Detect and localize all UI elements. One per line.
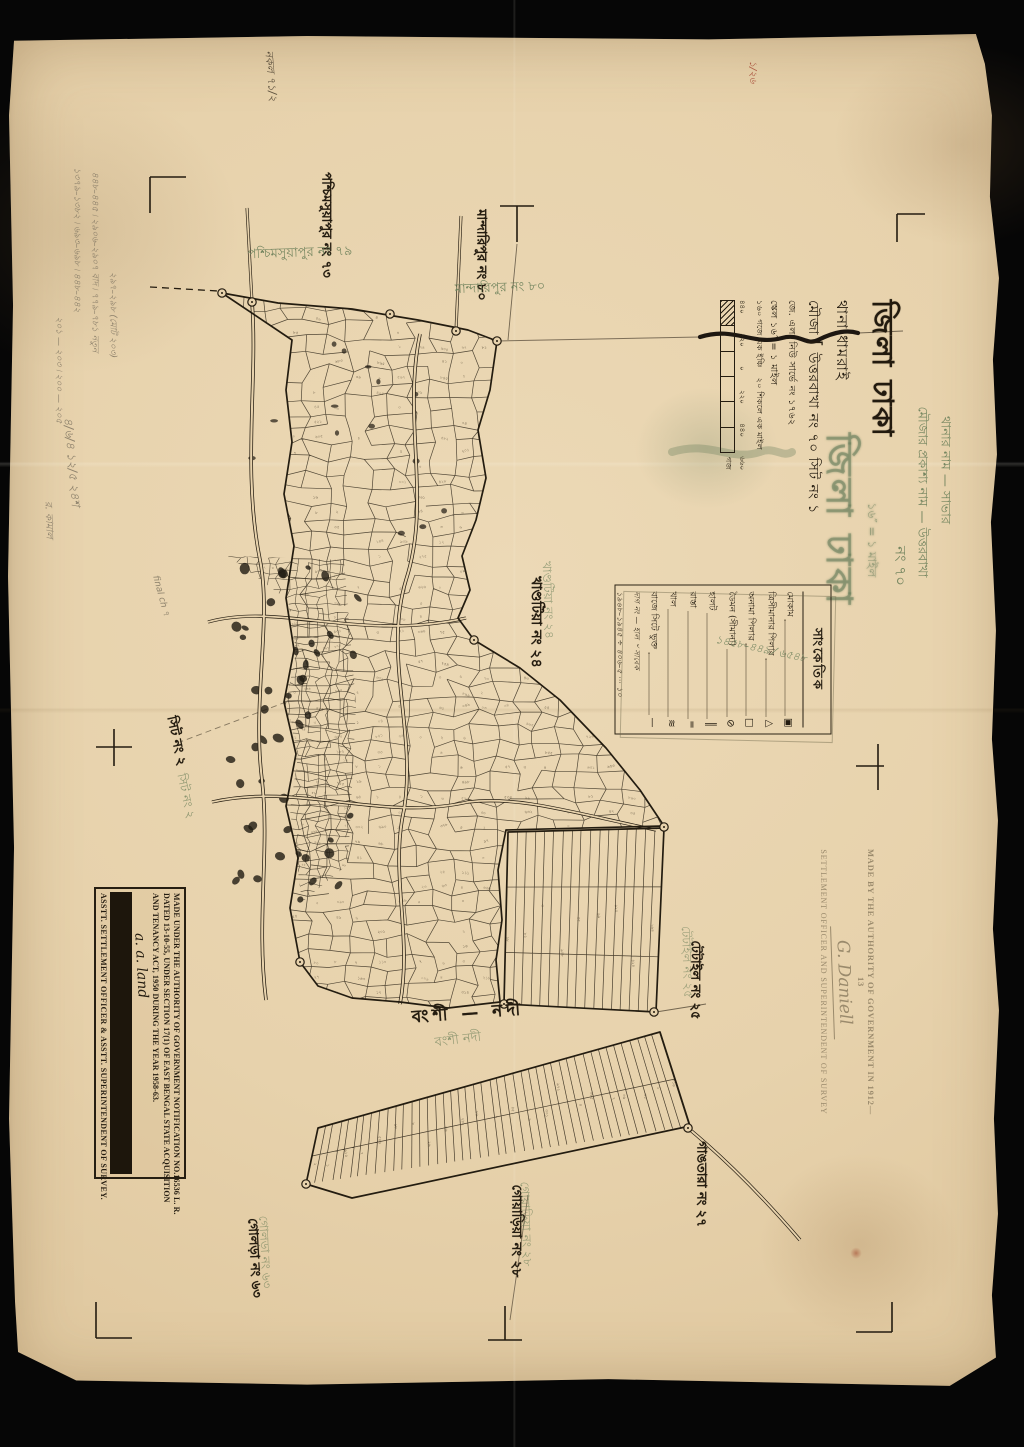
svg-text:৩: ৩ bbox=[438, 675, 442, 680]
svg-text:৪: ৪ bbox=[398, 794, 401, 799]
svg-text:৮০৬: ৮০৬ bbox=[273, 660, 282, 666]
svg-text:২: ২ bbox=[354, 960, 358, 965]
svg-text:৫৯: ৫৯ bbox=[282, 782, 287, 787]
svg-text:৯৯: ৯৯ bbox=[342, 863, 347, 868]
svg-text:০: ০ bbox=[607, 493, 611, 499]
svg-text:৪: ৪ bbox=[463, 299, 466, 304]
svg-text:২: ২ bbox=[564, 629, 567, 634]
svg-text:১৩: ১৩ bbox=[343, 758, 348, 762]
svg-text:১: ১ bbox=[376, 794, 380, 799]
registration-mark bbox=[500, 206, 534, 242]
svg-text:৩৩২: ৩৩২ bbox=[375, 675, 384, 682]
svg-text:৫০০: ৫০০ bbox=[291, 621, 298, 627]
svg-text:২: ২ bbox=[440, 735, 443, 740]
svg-text:৮৩৬: ৮৩৬ bbox=[230, 750, 239, 757]
svg-text:৪২৪: ৪২৪ bbox=[631, 959, 637, 968]
svg-text:৮৪৫: ৮৪৫ bbox=[440, 375, 449, 381]
svg-text:০৪: ০৪ bbox=[249, 868, 256, 874]
svg-text:৮: ৮ bbox=[315, 510, 319, 515]
authority-1912-stamp: MADE BY THE AUTHORITY OF GOVERNMENT IN 1… bbox=[798, 844, 876, 1120]
svg-text:৬১১: ৬১১ bbox=[648, 372, 657, 380]
svg-text:৫৪: ৫৪ bbox=[544, 705, 550, 711]
svg-text:৩: ৩ bbox=[650, 975, 653, 980]
svg-text:২৮৬: ২৮৬ bbox=[544, 476, 553, 484]
svg-text:২: ২ bbox=[524, 436, 528, 442]
svg-text:৩: ৩ bbox=[440, 524, 443, 529]
svg-text:৮: ৮ bbox=[565, 495, 569, 501]
svg-text:৫৯: ৫৯ bbox=[398, 1018, 405, 1024]
svg-text:৯৪৫: ৯৪৫ bbox=[250, 1020, 259, 1026]
scale-tick: ৪৪০ bbox=[736, 300, 748, 314]
svg-text:৮: ৮ bbox=[334, 615, 337, 620]
svg-text:৪৬: ৪৬ bbox=[273, 389, 279, 394]
svg-text:১৮৫: ১৮৫ bbox=[263, 695, 270, 700]
svg-text:৯৫: ৯৫ bbox=[651, 479, 657, 484]
svg-text:৯২৬: ৯২৬ bbox=[630, 463, 639, 469]
svg-text:৮৬০: ৮৬০ bbox=[628, 795, 637, 802]
svg-text:৩: ৩ bbox=[462, 958, 466, 963]
svg-text:১: ১ bbox=[273, 1020, 277, 1026]
svg-text:৪৫৬: ৪৫৬ bbox=[525, 447, 534, 454]
svg-text:৮৭১: ৮৭১ bbox=[334, 643, 342, 649]
svg-text:৭৫: ৭৫ bbox=[607, 555, 614, 561]
svg-text:৮১: ৮১ bbox=[481, 345, 487, 350]
margin-handwritten-note: ৪৪৮–৪৪৫ ৷ ২৯০৬–২৯০৭ বাদ ৷ ৭৭৯–৭৮১ নতুন bbox=[90, 172, 99, 352]
svg-text:৮৬৩: ৮৬৩ bbox=[670, 807, 679, 814]
svg-text:১: ১ bbox=[670, 869, 674, 874]
svg-text:৪৪: ৪৪ bbox=[313, 299, 319, 304]
svg-text:৭৮: ৭৮ bbox=[694, 855, 700, 861]
svg-text:৫: ৫ bbox=[399, 449, 403, 454]
svg-text:১০: ১০ bbox=[351, 598, 356, 602]
svg-text:০: ০ bbox=[523, 870, 526, 875]
svg-text:৪: ৪ bbox=[691, 435, 694, 440]
neighbor-mouza-label: খাণ্ডটিয়া নং ২৪ bbox=[541, 561, 556, 639]
svg-text:৩: ৩ bbox=[250, 735, 254, 741]
svg-text:৮৫৫: ৮৫৫ bbox=[545, 750, 554, 756]
svg-text:৪৫: ৪৫ bbox=[511, 1106, 516, 1112]
neighbor-mouza-label: পশ্চিমসুয়াপুর নং ৭৯ bbox=[248, 245, 353, 262]
svg-text:৬৯০: ৬৯০ bbox=[379, 824, 387, 829]
svg-text:৩২: ৩২ bbox=[546, 990, 552, 995]
svg-text:৮৯৫: ৮৯৫ bbox=[377, 360, 386, 366]
margin-handwritten-note: ১/২৬ bbox=[747, 61, 757, 84]
svg-text:৩৩: ৩৩ bbox=[377, 750, 383, 755]
svg-text:৮: ৮ bbox=[355, 764, 359, 770]
svg-text:২: ২ bbox=[273, 990, 277, 995]
svg-text:২০১: ২০১ bbox=[461, 447, 470, 454]
svg-text:৮০: ৮০ bbox=[313, 960, 320, 966]
svg-text:৭৩: ৭৩ bbox=[483, 675, 490, 681]
svg-text:৩৮৮: ৩৮৮ bbox=[587, 854, 596, 860]
svg-text:১১০: ১১০ bbox=[379, 959, 387, 964]
svg-text:৩: ৩ bbox=[232, 839, 236, 844]
svg-text:৯৩৪: ৯৩৪ bbox=[440, 345, 449, 352]
svg-text:২৮২: ২৮২ bbox=[460, 1118, 466, 1127]
svg-text:০: ০ bbox=[315, 900, 319, 906]
svg-text:৫৬৫: ৫৬৫ bbox=[243, 621, 250, 626]
svg-text:৩: ৩ bbox=[322, 655, 324, 659]
neighbor-mouza-label: গাঙতারা নং ২৭ bbox=[695, 1141, 708, 1227]
neighbor-mouza-label: মান্দারিপুর নং ৮০ bbox=[455, 280, 546, 296]
svg-text:৭৬৮: ৭৬৮ bbox=[588, 356, 597, 363]
svg-text:০৭৯: ০৭৯ bbox=[421, 975, 430, 981]
svg-text:৬: ৬ bbox=[459, 525, 462, 530]
svg-text:৭৩৯: ৭৩৯ bbox=[585, 990, 594, 996]
svg-text:০৯: ০৯ bbox=[361, 790, 366, 795]
svg-text:৭০: ৭০ bbox=[481, 538, 488, 544]
svg-text:৫: ৫ bbox=[419, 601, 423, 607]
svg-text:১: ১ bbox=[693, 869, 697, 874]
svg-text:১৬: ১৬ bbox=[462, 943, 468, 949]
svg-text:১: ১ bbox=[326, 1164, 331, 1167]
svg-text:৬৪: ৬৪ bbox=[356, 794, 362, 799]
svg-text:২: ২ bbox=[356, 690, 359, 695]
svg-text:৪৩১: ৪৩১ bbox=[670, 989, 678, 994]
svg-text:৮৯: ৮৯ bbox=[474, 1111, 479, 1117]
svg-text:৯: ৯ bbox=[545, 945, 548, 950]
svg-text:৬: ৬ bbox=[442, 960, 446, 965]
svg-text:৮৩৮: ৮৩৮ bbox=[649, 315, 658, 321]
svg-text:৭৭: ৭৭ bbox=[249, 988, 256, 994]
svg-text:৯১৭: ৯১৭ bbox=[628, 405, 637, 412]
registration-mark bbox=[488, 1306, 522, 1340]
svg-text:১২: ১২ bbox=[376, 990, 382, 995]
svg-text:০৭৪: ০৭৪ bbox=[354, 872, 362, 878]
svg-text:৮: ৮ bbox=[411, 1122, 416, 1125]
authority-1912-line1: MADE BY THE AUTHORITY OF GOVERNMENT IN 1… bbox=[856, 844, 876, 1120]
svg-text:৬২৬: ৬২৬ bbox=[418, 584, 426, 589]
svg-text:০২৫: ০২৫ bbox=[314, 840, 322, 846]
svg-text:৬৬৯: ৬৬৯ bbox=[483, 885, 492, 891]
margin-handwritten-note: ১৩৭৯–১৩৮২ ৷ ৬৯৩–৬৯৮ ৷ ৪৪৮–৪৪২ bbox=[72, 168, 81, 313]
svg-text:০৭৯: ০৭৯ bbox=[271, 823, 278, 827]
registration-mark bbox=[96, 1302, 132, 1338]
svg-text:৪: ৪ bbox=[524, 328, 528, 334]
svg-text:৪৬৪: ৪৬৪ bbox=[649, 867, 658, 874]
svg-text:২: ২ bbox=[669, 973, 673, 979]
svg-text:৬৮৩: ৬৮৩ bbox=[334, 358, 343, 364]
svg-text:৩৮: ৩৮ bbox=[228, 658, 235, 664]
legend-handnote-2: ১৯৬৮–১৯৪৫ ÷ ৪০৬–৫ ⋯ ১০ bbox=[613, 592, 625, 728]
svg-text:৮: ৮ bbox=[672, 854, 675, 859]
svg-text:৪: ৪ bbox=[375, 315, 379, 321]
svg-text:০: ০ bbox=[418, 900, 421, 905]
svg-text:৭১: ৭১ bbox=[482, 328, 489, 334]
svg-text:১: ১ bbox=[398, 344, 402, 349]
margin-handwritten-note: ২৯৭–২৯৮ (মোট ২০৩) bbox=[108, 272, 117, 358]
svg-text:৫: ৫ bbox=[232, 374, 235, 379]
svg-text:৩: ৩ bbox=[398, 810, 402, 815]
svg-text:২৮৩: ২৮৩ bbox=[352, 668, 360, 674]
svg-text:০: ০ bbox=[438, 585, 442, 591]
svg-text:৪১: ৪১ bbox=[442, 358, 448, 364]
svg-text:৩: ৩ bbox=[376, 630, 379, 635]
svg-text:৬৩১: ৬৩১ bbox=[587, 765, 595, 770]
svg-text:০৮: ০৮ bbox=[253, 606, 258, 611]
legend-row: অনামা পিলার□ bbox=[744, 592, 759, 728]
svg-text:০৪৮: ০৪৮ bbox=[343, 911, 350, 916]
svg-text:৬৭: ৬৭ bbox=[462, 345, 468, 350]
svg-text:০০১: ০০১ bbox=[399, 479, 407, 484]
svg-text:৭৪: ৭৪ bbox=[419, 345, 425, 350]
svg-text:০৫২: ০৫২ bbox=[586, 570, 595, 577]
svg-text:৭: ৭ bbox=[609, 406, 613, 412]
svg-text:৫: ৫ bbox=[462, 373, 466, 379]
svg-text:৯: ৯ bbox=[527, 1118, 532, 1121]
svg-text:২৪৮: ২৪৮ bbox=[361, 583, 368, 588]
svg-text:৫: ৫ bbox=[459, 674, 463, 680]
svg-text:১৮২: ১৮২ bbox=[336, 749, 345, 755]
svg-text:০৩: ০৩ bbox=[481, 705, 487, 711]
svg-text:৯: ৯ bbox=[630, 1005, 633, 1010]
svg-text:০: ০ bbox=[526, 554, 530, 559]
svg-text:১: ১ bbox=[356, 720, 359, 725]
svg-text:৪৯: ৪৯ bbox=[631, 419, 637, 424]
svg-text:৩৭৮: ৩৭৮ bbox=[439, 822, 448, 829]
green-ghost-district-title: জিলা ঢাকা bbox=[820, 433, 856, 607]
svg-text:৪: ৪ bbox=[459, 825, 463, 831]
svg-text:৭৯: ৭৯ bbox=[355, 839, 361, 845]
svg-text:৭: ৭ bbox=[357, 436, 361, 442]
svg-text:৪৮: ৪৮ bbox=[270, 630, 277, 636]
svg-text:২০১: ২০১ bbox=[377, 929, 386, 935]
scale-bar-unit: গজ bbox=[721, 457, 734, 470]
svg-text:০৪: ০৪ bbox=[377, 718, 383, 724]
svg-text:৪৬২: ৪৬২ bbox=[310, 829, 317, 835]
svg-text:৮৮: ৮৮ bbox=[273, 720, 279, 725]
svg-text:৯: ৯ bbox=[228, 598, 232, 604]
svg-text:৩৯২: ৩৯২ bbox=[482, 435, 491, 442]
svg-text:৫৩২: ৫৩২ bbox=[564, 538, 573, 544]
svg-text:২৫: ২৫ bbox=[440, 869, 446, 874]
svg-text:৭: ৭ bbox=[357, 585, 360, 590]
neighbor-mouza-label: গোলড়া নং ৬৩ bbox=[257, 1215, 273, 1288]
svg-text:২: ২ bbox=[480, 690, 484, 696]
svg-text:১২: ১২ bbox=[271, 631, 276, 636]
svg-text:১২: ১২ bbox=[439, 539, 445, 544]
svg-text:২: ২ bbox=[313, 1163, 318, 1166]
svg-text:২: ২ bbox=[336, 509, 339, 514]
neighbor-mouza-label: গোয়াড়িয়া নং ২৮ bbox=[519, 1181, 534, 1266]
svg-text:০৯১: ০৯১ bbox=[459, 567, 468, 574]
legend-box: সাংকেতিক মোকাম▣ত্রিসীমানার পিলার△অনামা প… bbox=[615, 585, 832, 735]
svg-text:৫৯৭: ৫৯৭ bbox=[631, 987, 640, 993]
svg-text:৬০২: ৬০২ bbox=[241, 742, 248, 747]
svg-text:৩১৪: ৩১৪ bbox=[461, 990, 469, 995]
svg-text:৩৩: ৩৩ bbox=[438, 705, 445, 711]
svg-text:০৯: ০৯ bbox=[356, 374, 362, 379]
svg-text:১১৩: ১১৩ bbox=[344, 805, 351, 810]
settlement-stamp: MADE UNDER THE AUTHORITY OF GOVERNMENT N… bbox=[94, 887, 186, 1179]
svg-text:২১: ২১ bbox=[607, 584, 613, 590]
svg-text:২৫: ২৫ bbox=[301, 863, 306, 867]
svg-text:৮: ৮ bbox=[588, 598, 592, 604]
svg-text:১৪: ১৪ bbox=[545, 915, 551, 921]
svg-text:৭৮৮: ৭৮৮ bbox=[501, 374, 510, 380]
legend-row: ডৈমন (সীমানা)⊘ bbox=[725, 592, 740, 728]
svg-text:৫৩৪: ৫৩৪ bbox=[504, 795, 512, 800]
svg-text:৫৫: ৫৫ bbox=[649, 750, 655, 755]
svg-text:২৭০: ২৭০ bbox=[272, 688, 281, 694]
svg-text:৩: ৩ bbox=[441, 796, 445, 802]
svg-text:০: ০ bbox=[292, 433, 296, 439]
svg-text:৯৭: ৯৭ bbox=[233, 605, 238, 610]
svg-text:১: ১ bbox=[546, 449, 550, 454]
svg-text:৫৬৭: ৫৬৭ bbox=[397, 375, 405, 380]
svg-text:৫৫৫: ৫৫৫ bbox=[693, 375, 702, 381]
svg-text:৩: ৩ bbox=[481, 855, 485, 861]
scale-tick: ২২০ bbox=[736, 390, 748, 404]
svg-text:৪৯৮: ৪৯৮ bbox=[462, 779, 470, 784]
svg-text:৯৬: ৯৬ bbox=[481, 570, 488, 576]
svg-text:৬০৫: ৬০৫ bbox=[315, 433, 324, 439]
svg-text:৯৩৯: ৯৩৯ bbox=[691, 899, 700, 905]
svg-text:৬: ৬ bbox=[355, 915, 359, 921]
svg-text:০: ০ bbox=[396, 330, 400, 336]
svg-text:৭৬: ৭৬ bbox=[251, 658, 257, 664]
svg-text:৯৯৫: ৯৯৫ bbox=[587, 330, 595, 335]
svg-text:৪: ৪ bbox=[251, 1004, 254, 1009]
svg-text:১১: ১১ bbox=[232, 1020, 238, 1025]
svg-text:৮: ৮ bbox=[334, 959, 338, 964]
svg-text:২১: ২১ bbox=[693, 556, 700, 562]
svg-text:৮: ৮ bbox=[544, 419, 548, 425]
svg-text:৮: ৮ bbox=[272, 846, 275, 850]
svg-text:৯: ৯ bbox=[241, 598, 244, 602]
svg-text:৭৫৮: ৭৫৮ bbox=[322, 901, 329, 907]
settlement-signature: a. a. land bbox=[132, 933, 151, 999]
svg-text:৮৫: ৮৫ bbox=[293, 330, 299, 336]
svg-text:৪: ৪ bbox=[460, 885, 464, 890]
svg-text:০১৯: ০১৯ bbox=[524, 911, 533, 918]
svg-text:৫: ৫ bbox=[545, 868, 549, 874]
svg-text:৮: ৮ bbox=[230, 555, 234, 561]
svg-text:৬৯: ৬৯ bbox=[587, 297, 594, 304]
svg-text:৩: ৩ bbox=[546, 402, 551, 408]
svg-text:০: ০ bbox=[503, 328, 507, 334]
svg-text:৭১১: ৭১১ bbox=[672, 1021, 681, 1028]
svg-text:২: ২ bbox=[418, 958, 422, 964]
svg-text:১০: ১০ bbox=[630, 375, 636, 380]
svg-text:৩৪: ৩৪ bbox=[503, 702, 510, 708]
legend-row: বাজে সিটে ভুক্ত— bbox=[647, 592, 662, 728]
svg-text:৮১: ৮১ bbox=[522, 315, 528, 321]
svg-text:৪: ৪ bbox=[565, 525, 568, 530]
svg-text:৫৭: ৫৭ bbox=[505, 764, 511, 769]
svg-text:৫৪: ৫৪ bbox=[671, 748, 678, 754]
svg-text:৯২৭: ৯২৭ bbox=[481, 585, 489, 590]
svg-text:২২: ২২ bbox=[275, 799, 279, 803]
svg-text:৯৯: ৯৯ bbox=[230, 675, 236, 680]
svg-text:২১৮: ২১৮ bbox=[482, 975, 491, 981]
svg-text:২: ২ bbox=[333, 574, 336, 578]
mouza-prefix: মৌজা bbox=[805, 300, 821, 335]
svg-text:৩: ৩ bbox=[461, 510, 465, 516]
svg-text:৭২৩: ৭২৩ bbox=[482, 555, 491, 561]
svg-text:২৬: ২৬ bbox=[427, 1141, 432, 1147]
svg-text:১০৯: ১০৯ bbox=[420, 298, 429, 304]
svg-text:৪: ৪ bbox=[440, 975, 443, 980]
svg-text:৬৫৩: ৬৫৩ bbox=[607, 763, 616, 770]
svg-text:৯০৭: ৯০৭ bbox=[587, 540, 595, 545]
registration-mark bbox=[96, 729, 132, 766]
svg-text:০: ০ bbox=[418, 464, 422, 469]
svg-text:৪: ৪ bbox=[228, 779, 232, 785]
svg-text:৭৫৪: ৭৫৪ bbox=[441, 660, 450, 667]
scale-tick: ২২০ bbox=[736, 333, 748, 347]
svg-text:১: ১ bbox=[274, 945, 278, 950]
svg-text:৩: ৩ bbox=[264, 767, 267, 771]
svg-text:২৭৮: ২৭৮ bbox=[671, 330, 679, 335]
svg-text:২৭: ২৭ bbox=[314, 974, 320, 979]
svg-text:১: ১ bbox=[377, 763, 381, 769]
svg-text:৩২: ৩২ bbox=[567, 1019, 573, 1024]
svg-text:৮: ৮ bbox=[312, 390, 316, 395]
registration-mark bbox=[856, 744, 884, 790]
svg-text:০: ০ bbox=[670, 899, 673, 904]
svg-text:৯৭২: ৯৭২ bbox=[556, 1083, 562, 1092]
svg-text:৭৭৭: ৭৭৭ bbox=[364, 879, 371, 883]
authority-1912-line2: SETTLEMENT OFFICER AND SUPERINTENDENT OF… bbox=[819, 844, 828, 1120]
svg-text:০: ০ bbox=[651, 435, 654, 440]
svg-text:৯১: ৯১ bbox=[691, 810, 698, 816]
svg-text:০: ০ bbox=[419, 735, 422, 740]
svg-text:৩৬: ৩৬ bbox=[333, 1018, 340, 1025]
svg-text:৪৮: ৪৮ bbox=[251, 973, 257, 979]
margin-handwritten-note: র. কামাল bbox=[42, 501, 53, 539]
svg-text:৭৬৭: ৭৬৭ bbox=[322, 646, 329, 650]
svg-text:৬২৪: ৬২৪ bbox=[525, 495, 534, 501]
settlement-stamp-black-bar bbox=[110, 892, 132, 1174]
svg-text:৩৫: ৩৫ bbox=[334, 525, 340, 530]
legend-row: খাল≋ bbox=[666, 592, 681, 728]
svg-text:১: ১ bbox=[291, 1004, 294, 1009]
svg-text:১৬৩: ১৬৩ bbox=[357, 975, 366, 981]
svg-text:১৯: ১৯ bbox=[356, 778, 362, 784]
svg-text:৮৯: ৮৯ bbox=[630, 569, 636, 574]
svg-text:২০১: ২০১ bbox=[231, 930, 240, 937]
svg-text:৪: ৪ bbox=[419, 614, 423, 619]
svg-text:৬: ৬ bbox=[440, 750, 444, 755]
svg-text:৫৮২: ৫৮২ bbox=[440, 435, 449, 441]
svg-text:৪: ৪ bbox=[586, 660, 591, 666]
svg-text:৮৩: ৮৩ bbox=[228, 899, 234, 904]
svg-text:২৯: ২৯ bbox=[608, 867, 615, 873]
svg-text:৫: ৫ bbox=[694, 750, 697, 755]
svg-text:৩: ৩ bbox=[523, 765, 526, 770]
svg-text:১: ১ bbox=[420, 793, 424, 799]
svg-text:৬: ৬ bbox=[565, 645, 569, 650]
svg-text:৩০: ৩০ bbox=[480, 810, 487, 816]
svg-text:৪৫: ৪৫ bbox=[502, 359, 508, 365]
svg-text:১৫: ১৫ bbox=[342, 870, 347, 874]
svg-text:১৪২: ১৪২ bbox=[608, 566, 617, 573]
svg-text:৩: ৩ bbox=[441, 300, 444, 305]
svg-text:৮: ৮ bbox=[523, 990, 527, 996]
svg-text:৯৯: ৯৯ bbox=[525, 795, 531, 801]
registration-mark bbox=[856, 1302, 892, 1332]
svg-text:১: ১ bbox=[231, 525, 235, 530]
svg-text:২: ২ bbox=[462, 928, 466, 933]
svg-text:৫৮: ৫৮ bbox=[311, 791, 316, 796]
svg-text:৬৮: ৬৮ bbox=[378, 840, 385, 846]
scale-tick: ৪৪০ bbox=[736, 423, 748, 437]
svg-text:৭: ৭ bbox=[293, 450, 297, 456]
svg-text:১৬: ১৬ bbox=[546, 345, 552, 351]
svg-text:৩: ৩ bbox=[313, 720, 317, 725]
green-stamp-mouza-number: নং ৭০ bbox=[893, 546, 908, 586]
